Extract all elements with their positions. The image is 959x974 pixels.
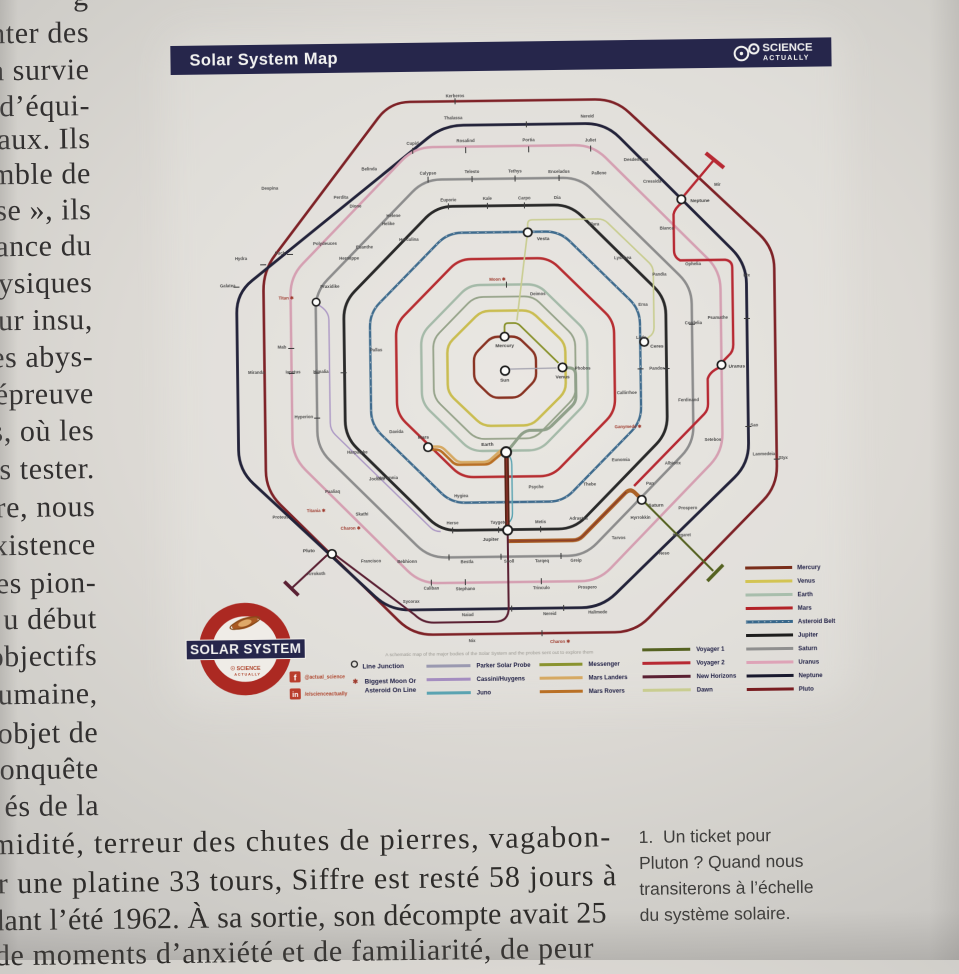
svg-text:f: f <box>294 672 297 682</box>
svg-text:Hygiea: Hygiea <box>454 493 469 498</box>
svg-text:ACTUALLY: ACTUALLY <box>234 672 261 676</box>
svg-text:Caliban: Caliban <box>424 586 440 591</box>
svg-text:Carpo: Carpo <box>518 195 531 200</box>
svg-text:Kerberos: Kerberos <box>445 93 465 98</box>
svg-text:Elara: Elara <box>589 221 600 226</box>
svg-text:Dione: Dione <box>349 204 362 209</box>
svg-text:Polydeuces: Polydeuces <box>313 241 338 246</box>
svg-text:Venus: Venus <box>797 579 815 585</box>
svg-text:Lysithea: Lysithea <box>614 255 632 260</box>
svg-text:Prospero: Prospero <box>578 584 597 589</box>
svg-text:Hermippe: Hermippe <box>339 256 359 261</box>
svg-text:Kale: Kale <box>483 196 493 201</box>
svg-text:Rosalind: Rosalind <box>456 138 475 143</box>
svg-text:Deimos: Deimos <box>530 291 546 296</box>
svg-text:Nereid: Nereid <box>543 611 557 616</box>
svg-text:Thalassa: Thalassa <box>444 115 463 120</box>
svg-text:Pallene: Pallene <box>591 170 607 175</box>
svg-text:Biggest Moon Or: Biggest Moon Or <box>365 678 417 686</box>
svg-text:Cassini/Huygens: Cassini/Huygens <box>477 677 526 684</box>
svg-text:Sycorax: Sycorax <box>403 599 420 604</box>
svg-text:Albiorix: Albiorix <box>665 460 682 465</box>
svg-text:Juliet: Juliet <box>585 137 597 142</box>
svg-text:Euanthe: Euanthe <box>356 244 374 249</box>
svg-text:Nix: Nix <box>469 638 476 643</box>
svg-text:Dia: Dia <box>554 195 561 200</box>
svg-text:Solar System Map: Solar System Map <box>189 50 338 70</box>
svg-text:@actual_science: @actual_science <box>305 674 346 681</box>
svg-text:Paaliaq: Paaliaq <box>325 489 340 494</box>
svg-text:Jupiter: Jupiter <box>483 537 499 543</box>
svg-text:Arrokoth: Arrokoth <box>307 571 326 576</box>
svg-text:Uranus: Uranus <box>798 660 819 666</box>
svg-text:Leda: Leda <box>636 335 647 340</box>
svg-text:✱: ✱ <box>353 679 358 686</box>
svg-text:Helene: Helene <box>386 213 401 218</box>
svg-text:Titania ✱: Titania ✱ <box>307 508 326 513</box>
svg-text:Cupid: Cupid <box>406 141 419 146</box>
svg-text:Prospero: Prospero <box>678 505 697 510</box>
svg-text:Bianca: Bianca <box>660 225 675 230</box>
svg-text:Tarqeq: Tarqeq <box>535 558 549 563</box>
svg-text:Portia: Portia <box>522 137 535 142</box>
svg-text:Enceladus: Enceladus <box>548 169 570 174</box>
svg-text:Mars Landers: Mars Landers <box>589 675 629 682</box>
svg-text:Bestla: Bestla <box>461 559 475 564</box>
svg-text:Asteroid On Line: Asteroid On Line <box>365 687 417 695</box>
svg-text:Telesto: Telesto <box>465 169 480 174</box>
svg-text:Ophelia: Ophelia <box>685 261 701 266</box>
svg-text:A schematic map of the major b: A schematic map of the major bodies of t… <box>385 650 593 659</box>
svg-text:Davida: Davida <box>389 429 404 434</box>
svg-text:Mars Rovers: Mars Rovers <box>589 689 626 695</box>
svg-text:Pandia: Pandia <box>652 272 667 277</box>
svg-text:Perdita: Perdita <box>334 195 349 200</box>
svg-text:Psyche: Psyche <box>529 484 545 489</box>
svg-text:Tethys: Tethys <box>508 168 522 173</box>
svg-text:/e/scienceactually: /e/scienceactually <box>305 691 348 698</box>
svg-text:Euporie: Euporie <box>440 197 457 202</box>
svg-text:Phobos: Phobos <box>575 366 591 371</box>
svg-text:Charon ✱: Charon ✱ <box>341 526 361 531</box>
svg-text:Hyperion: Hyperion <box>295 414 314 419</box>
svg-text:Mab: Mab <box>278 345 287 350</box>
svg-text:Helike: Helike <box>382 221 395 226</box>
svg-text:Greip: Greip <box>570 558 582 563</box>
svg-text:Earth: Earth <box>798 592 814 598</box>
svg-text:Mars: Mars <box>418 435 430 441</box>
svg-text:Pluto: Pluto <box>303 548 315 554</box>
svg-text:New Horizons: New Horizons <box>697 674 737 681</box>
svg-text:☉ SCIENCE: ☉ SCIENCE <box>230 666 261 672</box>
svg-text:Calypso: Calypso <box>420 171 437 176</box>
svg-text:Trinculo: Trinculo <box>533 585 550 590</box>
svg-text:Titan ✱: Titan ✱ <box>279 295 294 300</box>
svg-text:Ganymede ✱: Ganymede ✱ <box>615 424 642 429</box>
svg-text:Skathi: Skathi <box>355 511 368 516</box>
svg-text:Mercury: Mercury <box>797 565 821 571</box>
svg-text:Dawn: Dawn <box>697 688 713 694</box>
svg-text:Styx: Styx <box>779 455 789 460</box>
svg-text:Mercury: Mercury <box>495 343 514 349</box>
svg-text:in: in <box>292 692 298 699</box>
svg-text:Thebe: Thebe <box>583 481 596 486</box>
svg-text:ACTUALLY: ACTUALLY <box>763 55 810 63</box>
svg-text:Mir: Mir <box>714 182 721 187</box>
svg-text:Hyrrokkin: Hyrrokkin <box>630 515 650 520</box>
svg-text:Messenger: Messenger <box>588 662 620 668</box>
svg-text:Neso: Neso <box>659 551 670 556</box>
svg-text:Venus: Venus <box>556 374 571 380</box>
svg-text:Ersa: Ersa <box>638 302 648 307</box>
svg-text:Eunomia: Eunomia <box>612 457 631 462</box>
svg-text:Laomedeia: Laomedeia <box>753 451 776 456</box>
svg-text:Psamathe: Psamathe <box>708 315 729 320</box>
svg-text:Neptune: Neptune <box>799 673 824 679</box>
svg-text:Taygete: Taygete <box>491 520 508 525</box>
svg-text:Asteroid Belt: Asteroid Belt <box>798 619 835 625</box>
svg-text:Sun: Sun <box>500 378 509 384</box>
svg-text:Setebos: Setebos <box>704 437 721 442</box>
svg-text:Charon ✱: Charon ✱ <box>550 639 570 644</box>
svg-text:Saturn: Saturn <box>648 503 663 509</box>
svg-text:Harpalyke: Harpalyke <box>347 449 368 454</box>
svg-text:Desdemona: Desdemona <box>624 157 649 162</box>
svg-text:Puck: Puck <box>275 251 286 256</box>
svg-text:Margaret: Margaret <box>673 532 692 537</box>
svg-text:Sao: Sao <box>750 422 758 427</box>
svg-text:Ceres: Ceres <box>650 344 664 350</box>
svg-text:Metis: Metis <box>535 519 547 524</box>
svg-text:Naiad: Naiad <box>462 612 474 617</box>
svg-text:Nix: Nix <box>743 272 750 277</box>
svg-text:Earth: Earth <box>481 442 493 448</box>
svg-text:Callirrhoe: Callirrhoe <box>617 390 638 395</box>
svg-text:Stephano: Stephano <box>456 586 476 591</box>
svg-text:Juno: Juno <box>477 691 492 697</box>
svg-text:Voyager 2: Voyager 2 <box>696 661 725 667</box>
svg-text:Nereid: Nereid <box>581 113 595 118</box>
svg-text:Pallas: Pallas <box>370 347 383 352</box>
svg-text:Parker Solar Probe: Parker Solar Probe <box>476 663 531 670</box>
svg-text:Cressida: Cressida <box>643 179 662 184</box>
svg-text:Halimede: Halimede <box>588 609 608 614</box>
svg-text:Tarvos: Tarvos <box>612 535 626 540</box>
svg-text:Despina: Despina <box>261 186 278 191</box>
svg-text:Belinda: Belinda <box>361 166 377 171</box>
svg-text:SCIENCE: SCIENCE <box>762 42 813 55</box>
svg-text:Adrastea: Adrastea <box>569 516 588 521</box>
svg-text:Skoll: Skoll <box>504 559 514 564</box>
svg-text:Praxidike: Praxidike <box>320 284 340 289</box>
svg-text:Herse: Herse <box>447 520 460 525</box>
svg-text:Mars: Mars <box>798 606 813 612</box>
svg-text:SOLAR SYSTEM: SOLAR SYSTEM <box>190 641 301 657</box>
svg-text:Herculina: Herculina <box>399 237 419 242</box>
svg-text:Proteus: Proteus <box>272 515 289 520</box>
svg-text:Moon ✱: Moon ✱ <box>489 277 506 282</box>
svg-text:Uranus: Uranus <box>728 364 745 370</box>
svg-text:Miranda: Miranda <box>248 370 265 375</box>
svg-text:Jupiter: Jupiter <box>798 633 819 639</box>
svg-text:Interamnia: Interamnia <box>376 475 398 480</box>
svg-text:Pan: Pan <box>646 481 654 486</box>
svg-text:Hydra: Hydra <box>235 256 248 261</box>
svg-text:Pluto: Pluto <box>799 687 814 693</box>
svg-text:Line Junction: Line Junction <box>362 663 404 671</box>
svg-text:Vesta: Vesta <box>537 236 550 242</box>
svg-text:Francisco: Francisco <box>361 558 382 563</box>
svg-text:Voyager 1: Voyager 1 <box>696 647 725 653</box>
svg-text:Ferdinand: Ferdinand <box>678 397 699 402</box>
svg-text:Bebhionn: Bebhionn <box>397 559 417 564</box>
svg-text:Neptune: Neptune <box>690 198 710 204</box>
svg-text:Saturn: Saturn <box>798 646 817 652</box>
